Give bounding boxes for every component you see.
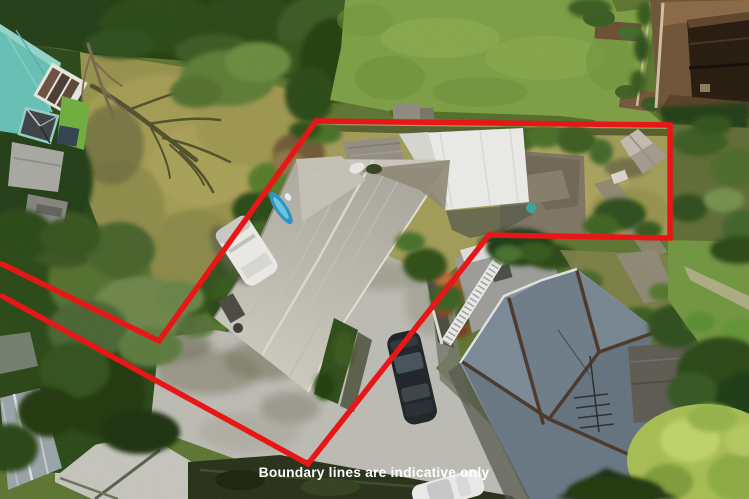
svg-text:Boundary lines are indicative: Boundary lines are indicative only [259,465,490,480]
